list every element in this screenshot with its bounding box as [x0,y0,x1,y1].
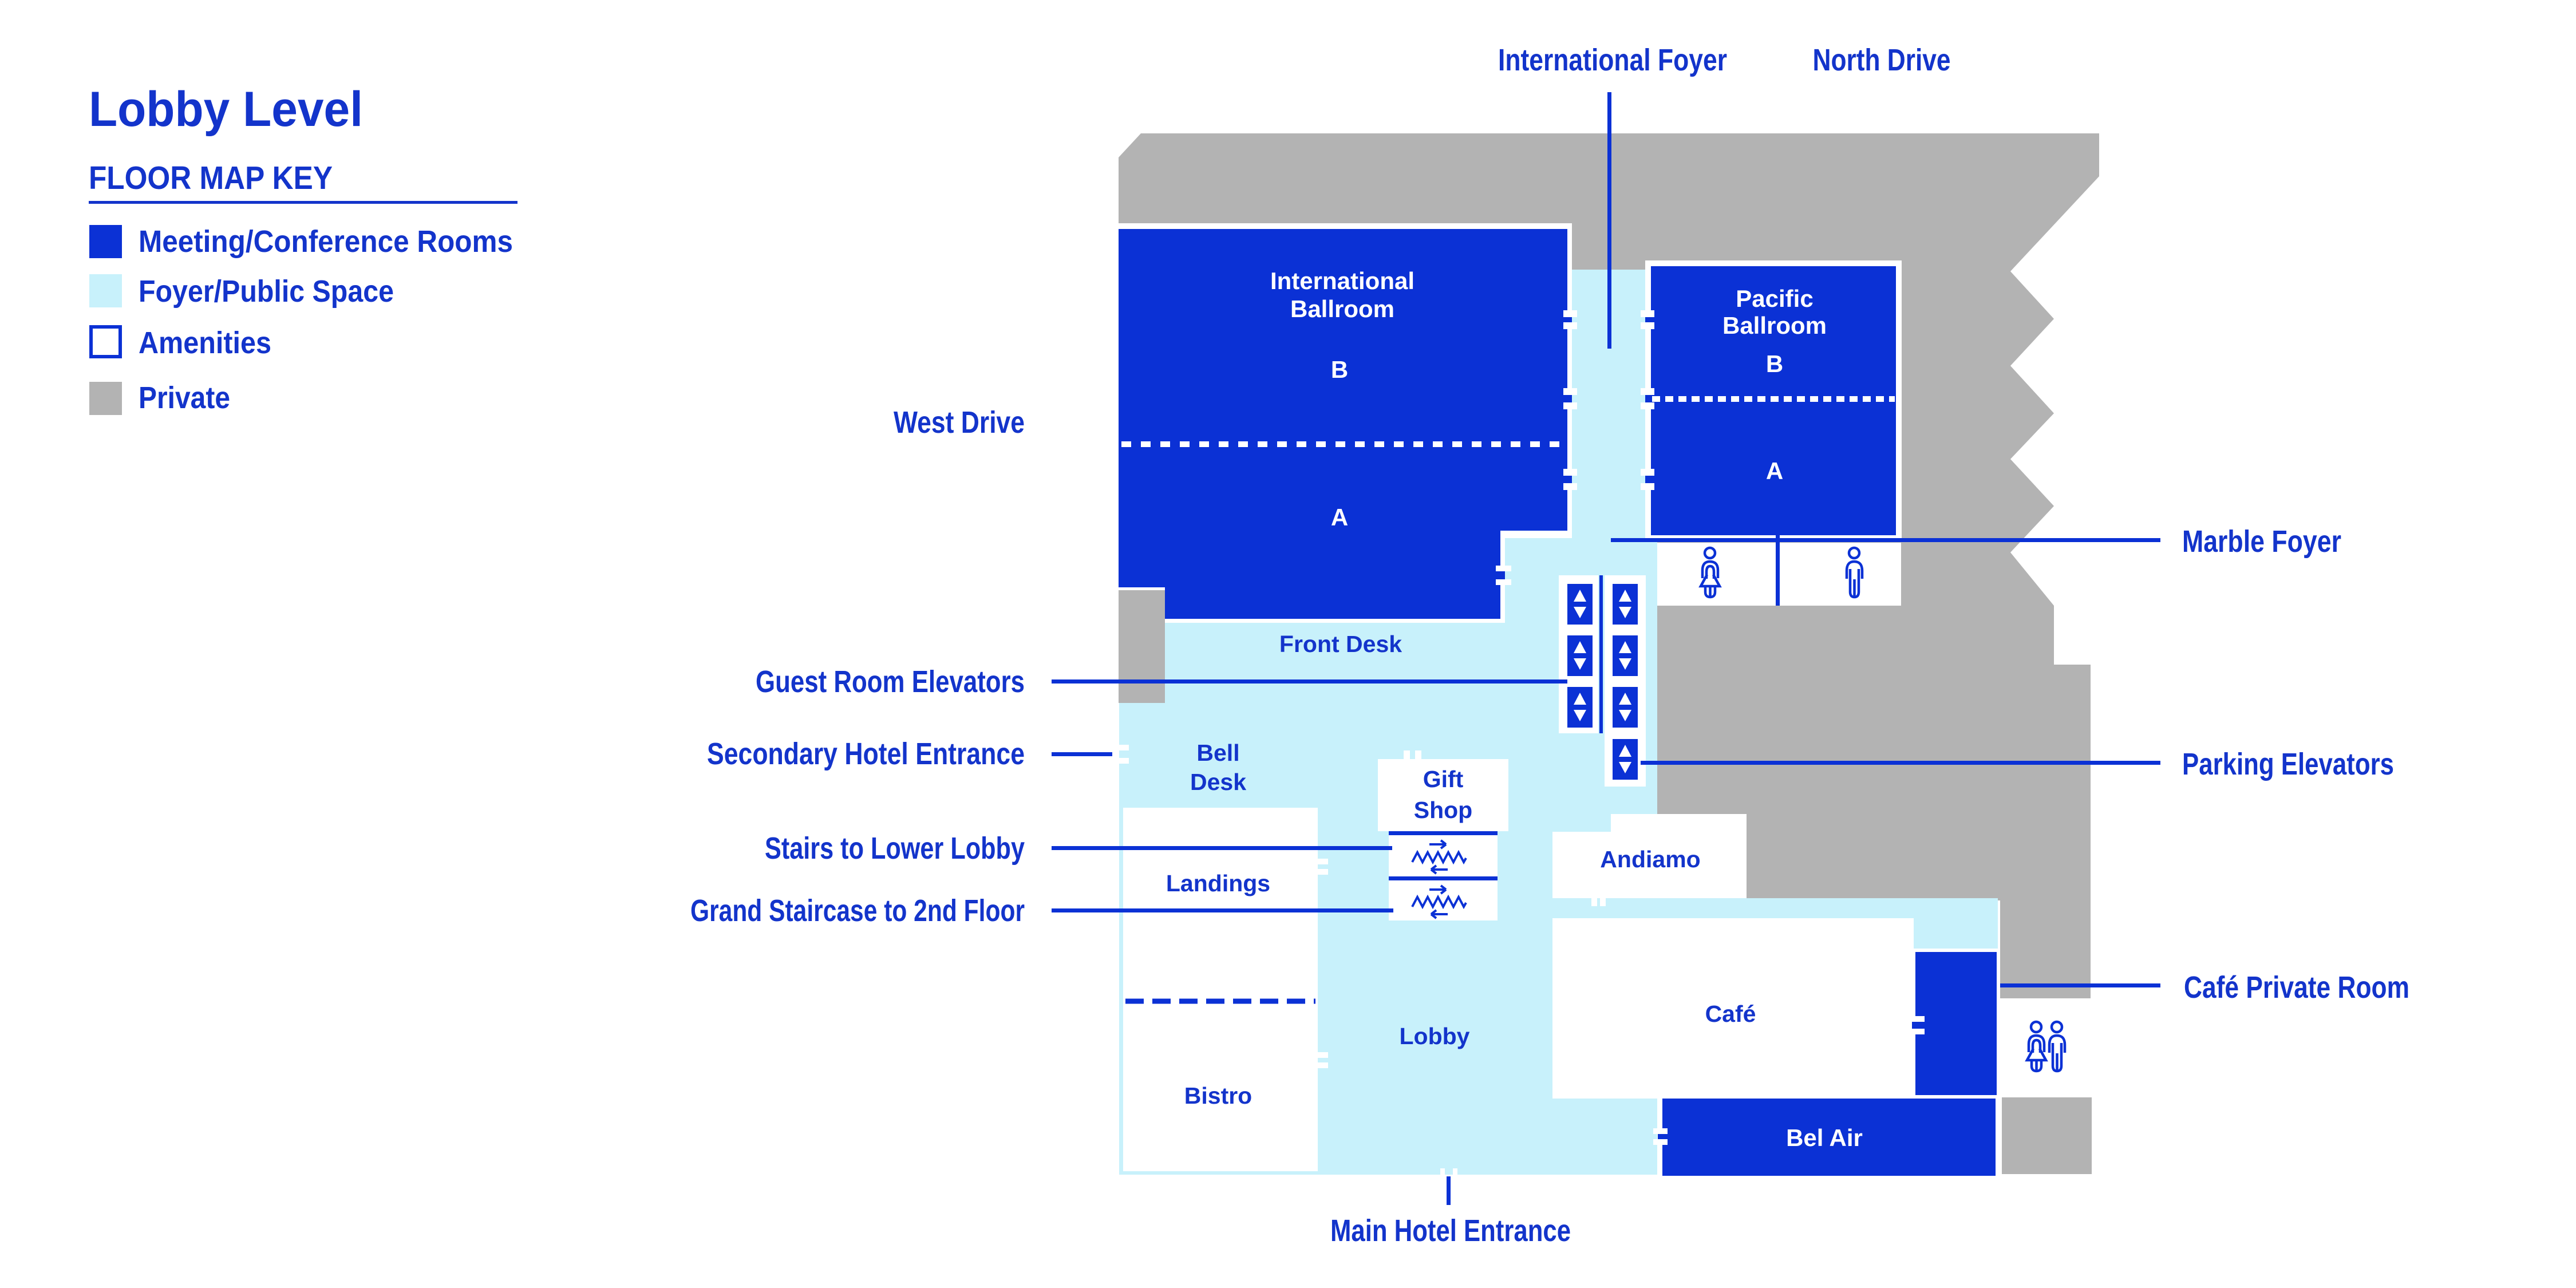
svg-text:FLOOR MAP KEY: FLOOR MAP KEY [89,160,333,196]
svg-text:West Drive: West Drive [894,405,1025,440]
svg-text:Landings: Landings [1166,870,1270,896]
svg-text:Front Desk: Front Desk [1279,631,1402,657]
svg-text:Parking Elevators: Parking Elevators [2182,747,2394,781]
svg-text:Andiamo: Andiamo [1600,846,1700,872]
svg-text:Gift: Gift [1423,766,1464,792]
svg-text:Ballroom: Ballroom [1290,295,1394,322]
svg-text:A: A [1766,457,1783,484]
svg-text:B: B [1766,350,1783,377]
svg-text:Amenities: Amenities [139,326,271,360]
svg-text:Meeting/Conference Rooms: Meeting/Conference Rooms [139,224,513,259]
svg-text:Grand Staircase to 2nd Floor: Grand Staircase to 2nd Floor [690,894,1025,928]
svg-text:Marble Foyer: Marble Foyer [2182,524,2341,559]
svg-text:Café: Café [1705,1001,1756,1027]
svg-text:Lobby Level: Lobby Level [89,82,363,137]
svg-text:Bell: Bell [1196,740,1239,766]
svg-text:Stairs to Lower Lobby: Stairs to Lower Lobby [765,831,1025,866]
svg-text:Pacific: Pacific [1736,285,1813,312]
svg-text:Secondary Hotel Entrance: Secondary Hotel Entrance [707,737,1025,771]
svg-text:Foyer/Public Space: Foyer/Public Space [139,274,394,309]
svg-text:International Foyer: International Foyer [1498,43,1727,77]
svg-text:Café Private Room: Café Private Room [2184,970,2409,1005]
svg-text:Guest Room Elevators: Guest Room Elevators [756,665,1025,699]
svg-text:North Drive: North Drive [1813,43,1951,77]
svg-text:Private: Private [139,381,230,415]
svg-text:Main Hotel Entrance: Main Hotel Entrance [1330,1214,1571,1248]
svg-text:Bel Air: Bel Air [1786,1124,1863,1151]
svg-text:Ballroom: Ballroom [1722,312,1827,339]
svg-text:Desk: Desk [1190,769,1246,795]
svg-text:International: International [1270,267,1415,294]
svg-text:A: A [1331,504,1348,531]
svg-text:Shop: Shop [1414,797,1472,823]
svg-text:Bistro: Bistro [1184,1082,1252,1109]
svg-text:B: B [1331,356,1348,383]
svg-text:Lobby: Lobby [1400,1023,1470,1049]
